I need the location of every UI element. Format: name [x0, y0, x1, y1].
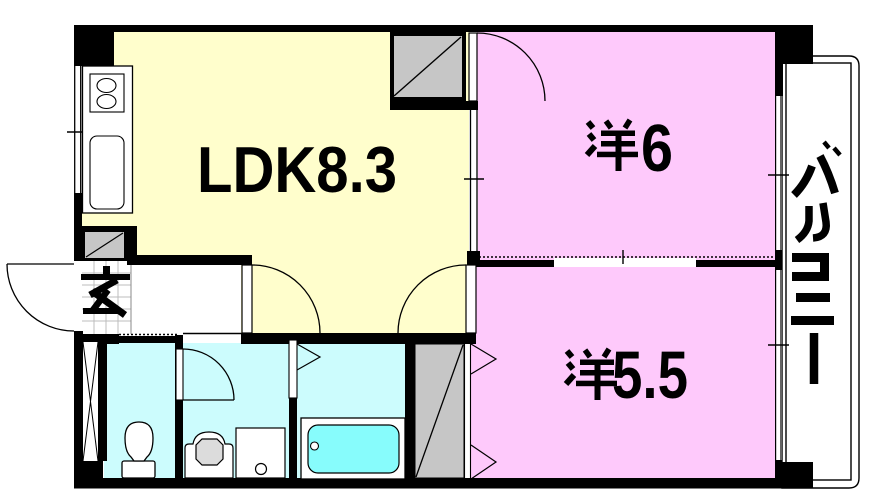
- svg-text:LDK8.3: LDK8.3: [197, 133, 397, 206]
- svg-text:6: 6: [641, 111, 673, 186]
- svg-text:5.5: 5.5: [612, 338, 688, 413]
